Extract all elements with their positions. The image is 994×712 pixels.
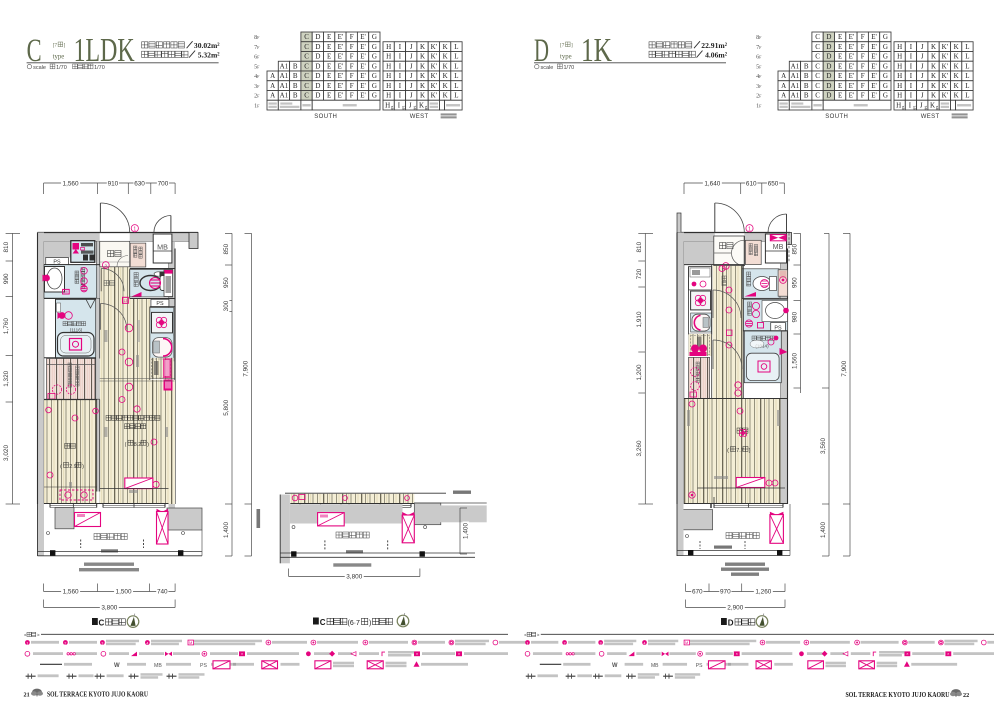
svg-text:1F: 1F [254,102,260,109]
svg-text:J: J [410,43,413,51]
svg-text:E': E' [360,53,366,61]
svg-text:E: E [327,92,331,100]
svg-text:K: K [443,62,448,70]
svg-text:F: F [350,43,354,51]
svg-text:H: H [897,53,902,61]
svg-text:A1: A1 [280,72,289,80]
svg-text:D: D [826,82,831,90]
svg-text:4F: 4F [254,73,260,80]
svg-text:7,900: 7,900 [841,360,848,376]
svg-text:K: K [954,72,959,80]
svg-text:1,640: 1,640 [704,180,720,187]
svg-text:3,260: 3,260 [636,440,643,456]
svg-text:3: 3 [600,641,602,645]
svg-text:3,800: 3,800 [101,605,117,612]
svg-text:J: J [921,92,924,100]
svg-text:L: L [965,72,969,80]
svg-text:C: C [815,53,820,61]
svg-text:D: D [826,53,831,61]
svg-text:type: type [53,54,65,61]
svg-text:K: K [954,43,959,51]
svg-text:E': E' [871,53,877,61]
svg-text:1,560: 1,560 [63,180,79,187]
svg-text:1/70: 1/70 [564,65,575,71]
svg-text:1/70: 1/70 [94,65,105,71]
svg-text:6F: 6F [254,54,260,61]
svg-text:7F: 7F [254,44,260,51]
svg-text:F: F [861,53,865,61]
svg-text:E': E' [871,43,877,51]
svg-text:F: F [861,82,865,90]
svg-text:H: H [897,62,902,70]
svg-text:1,560: 1,560 [63,589,79,596]
svg-text:E: E [838,33,842,41]
svg-text:F: F [350,72,354,80]
svg-text:K: K [931,72,936,80]
svg-text:810: 810 [636,241,643,252]
svg-text:K': K' [942,92,948,100]
svg-text:1: 1 [26,641,28,645]
svg-text:): ) [749,448,751,454]
svg-text:E': E' [849,62,855,70]
svg-text:4F: 4F [756,73,762,80]
svg-text:M: M [685,641,688,645]
svg-text:SOL TERRACE KYOTO JUJO KAORU: SOL TERRACE KYOTO JUJO KAORU [846,692,950,699]
svg-text:F: F [350,82,354,90]
svg-text:2: 2 [64,641,66,645]
svg-text:SOUTH: SOUTH [825,114,848,120]
svg-text:1,500: 1,500 [116,589,132,596]
svg-text:A: A [781,92,786,100]
svg-text:5.32m²: 5.32m² [198,51,221,60]
svg-text:K': K' [942,62,948,70]
svg-text:E': E' [849,33,855,41]
svg-text:E': E' [360,62,366,70]
svg-text:A: A [270,82,275,90]
svg-text:L: L [965,62,969,70]
svg-text:K: K [931,43,936,51]
svg-text:A: A [781,72,786,80]
svg-text:L: L [454,53,458,61]
svg-text:2F: 2F [254,93,260,100]
svg-text:<: < [24,633,27,638]
svg-text:F: F [350,62,354,70]
svg-text:G: G [372,72,377,80]
svg-text:E: E [327,82,331,90]
svg-text:H: H [897,72,902,80]
svg-text:C: C [815,33,820,41]
svg-text:A: A [781,82,786,90]
svg-text:H: H [386,82,391,90]
svg-text:C: C [304,82,309,90]
svg-text:G: G [883,43,888,51]
svg-text:E': E' [338,62,344,70]
svg-text:E: E [838,92,842,100]
svg-text:K: K [443,43,448,51]
svg-text:C: C [304,33,309,41]
svg-text:K: K [420,92,425,100]
svg-text:L: L [454,72,458,80]
svg-text:K: K [931,53,936,61]
svg-text:]: ] [571,43,573,49]
svg-text:E': E' [338,53,344,61]
svg-text:C: C [304,72,309,80]
svg-text:E: E [327,62,331,70]
svg-text:MB: MB [154,663,162,669]
svg-text:K': K' [431,53,437,61]
svg-text:H: H [386,72,391,80]
svg-text:(1116): (1116) [70,328,83,333]
svg-text:K: K [954,62,959,70]
svg-text:B: B [293,82,298,90]
svg-text:H: H [386,43,391,51]
svg-text:K: K [443,53,448,61]
svg-text:L: L [965,92,969,100]
svg-text:K: K [931,92,936,100]
svg-text:D: D [315,82,320,90]
svg-text:A1: A1 [791,92,800,100]
svg-text:1LDK: 1LDK [74,32,135,69]
svg-text:W: W [114,663,120,669]
svg-text:B: B [804,72,809,80]
svg-text:>: > [37,633,40,638]
svg-text:H: H [897,92,902,100]
svg-text:K: K [420,62,425,70]
svg-text:F: F [861,72,865,80]
svg-text:G: G [883,92,888,100]
svg-text:C: C [815,62,820,70]
svg-text:J: J [921,53,924,61]
svg-text:A1: A1 [791,82,800,90]
svg-text:2.9: 2.9 [69,464,77,470]
svg-text:H: H [386,53,391,61]
svg-text:E': E' [360,92,366,100]
svg-text:K: K [443,92,448,100]
svg-text:E': E' [360,33,366,41]
svg-text:E': E' [849,43,855,51]
svg-text:K: K [931,62,936,70]
svg-text:8F: 8F [756,34,762,41]
svg-text:1,910: 1,910 [636,311,643,327]
svg-text:WEST: WEST [410,114,429,120]
svg-text:B: B [804,62,809,70]
svg-text:D: D [826,92,831,100]
svg-text:F: F [861,43,865,51]
svg-text:K: K [954,53,959,61]
svg-text:K: K [443,72,448,80]
svg-text:H: H [896,101,901,109]
svg-text:E': E' [871,92,877,100]
svg-text:5,800: 5,800 [223,399,230,415]
svg-text:K': K' [431,92,437,100]
svg-text:L: L [454,92,458,100]
svg-text:E': E' [338,43,344,51]
svg-text:C: C [304,53,309,61]
svg-text:B: B [293,72,298,80]
svg-text:910: 910 [108,180,119,187]
svg-text:K': K' [942,72,948,80]
svg-text:2: 2 [564,641,566,645]
svg-text:E': E' [360,72,366,80]
svg-text:<: < [524,632,527,637]
svg-text:7,900: 7,900 [243,360,250,376]
svg-text:E: E [327,43,331,51]
svg-text:F: F [861,62,865,70]
svg-text:850: 850 [792,243,799,254]
svg-text:J: J [410,92,413,100]
svg-text:13: 13 [124,299,128,303]
svg-text:A1: A1 [280,82,289,90]
svg-text:C: C [815,72,820,80]
svg-text:E': E' [849,82,855,90]
svg-text:E': E' [338,82,344,90]
svg-text:K: K [954,92,959,100]
svg-text:type: type [560,54,572,61]
svg-text:E: E [838,62,842,70]
svg-text:G: G [372,82,377,90]
svg-text:J: J [921,62,924,70]
svg-text:980: 980 [792,311,799,322]
svg-text:H: H [386,62,391,70]
svg-text:E: E [327,53,331,61]
svg-text:A1: A1 [280,62,289,70]
svg-text:990: 990 [3,273,10,284]
svg-text:2: 2 [105,263,108,268]
svg-text:K': K' [942,43,948,51]
svg-text:E': E' [849,72,855,80]
svg-text:L: L [965,43,969,51]
svg-text:3,560: 3,560 [820,438,827,454]
svg-text:700: 700 [158,180,169,187]
svg-text:K: K [420,82,425,90]
svg-text:300: 300 [223,300,230,311]
svg-text:[7: [7 [53,43,58,49]
svg-text:J: J [921,72,924,80]
svg-text:K: K [954,82,959,90]
svg-text:W: W [612,663,618,669]
svg-text:950: 950 [223,277,230,288]
svg-text:F: F [350,33,354,41]
svg-text:2,900: 2,900 [727,605,743,612]
svg-text:1,260: 1,260 [755,589,771,596]
svg-text:E': E' [360,82,366,90]
svg-text:1: 1 [527,641,529,645]
svg-text:K: K [420,72,425,80]
svg-text:L: L [454,82,458,90]
svg-text:670: 670 [692,589,703,596]
svg-text:L: L [454,43,458,51]
svg-text:(: ( [727,448,729,454]
svg-text:2F: 2F [756,93,762,100]
svg-text:3: 3 [101,641,103,645]
svg-text:D: D [534,33,549,69]
svg-text:WEST: WEST [921,114,940,120]
svg-text:SOL TERRACE KYOTO JUJO KAORU: SOL TERRACE KYOTO JUJO KAORU [47,692,148,699]
svg-text:E': E' [338,33,344,41]
svg-text:K: K [419,101,424,109]
svg-text:1,400: 1,400 [820,522,827,538]
svg-text:PS: PS [696,663,703,669]
svg-text:5F: 5F [756,63,762,70]
svg-text:E': E' [871,62,877,70]
svg-text:D: D [826,62,831,70]
svg-text:C: C [815,82,820,90]
svg-text:E: E [327,72,331,80]
svg-text:(: ( [60,464,62,470]
svg-text:B: B [804,92,809,100]
svg-text:M: M [189,641,192,645]
svg-text:5F: 5F [254,63,260,70]
svg-text:D: D [315,53,320,61]
svg-text:K': K' [431,82,437,90]
svg-text:>: > [537,632,540,637]
svg-text:G: G [883,53,888,61]
svg-text:C: C [27,33,42,69]
svg-text:H: H [897,43,902,51]
svg-text:E': E' [871,33,877,41]
svg-text:A1: A1 [791,62,800,70]
svg-text:D: D [315,72,320,80]
svg-text:21: 21 [24,692,30,699]
svg-text:K': K' [942,53,948,61]
svg-text:K': K' [431,43,437,51]
svg-text:J: J [410,62,413,70]
svg-text:A: A [270,92,275,100]
svg-text:L: L [965,53,969,61]
svg-text:1K: 1K [581,32,612,69]
svg-text:G: G [372,33,377,41]
svg-text:630: 630 [134,180,145,187]
svg-text:950: 950 [792,277,799,288]
svg-text:G: G [372,62,377,70]
svg-text:720: 720 [636,268,643,279]
svg-text:K: K [930,101,935,109]
svg-text:D: D [826,72,831,80]
svg-text:A1: A1 [280,92,289,100]
svg-text:G: G [883,33,888,41]
svg-text:1,400: 1,400 [223,522,230,538]
svg-text:D: D [315,43,320,51]
svg-text:E': E' [338,72,344,80]
svg-text:D: D [315,62,320,70]
svg-text:E': E' [871,72,877,80]
svg-text:K': K' [431,72,437,80]
svg-text:C: C [99,618,105,627]
svg-text:K: K [420,53,425,61]
svg-text:7F: 7F [756,44,762,51]
svg-text:B: B [293,62,298,70]
svg-text:H: H [386,92,391,100]
svg-text:G: G [372,53,377,61]
svg-text:G: G [372,43,377,51]
svg-text:F: F [861,92,865,100]
svg-text:MB: MB [157,243,168,252]
svg-text:1: 1 [748,227,751,233]
svg-text:A: A [270,72,275,80]
svg-text:4: 4 [644,641,646,645]
svg-text:3,020: 3,020 [3,445,10,461]
svg-text:J: J [921,43,924,51]
svg-text:1/70: 1/70 [56,65,67,71]
svg-text:J: J [921,82,924,90]
svg-text:E: E [838,82,842,90]
svg-text:810: 810 [3,241,10,252]
svg-text:970: 970 [720,589,731,596]
svg-text:E': E' [360,43,366,51]
svg-text:J: J [410,72,413,80]
svg-text:3F: 3F [254,83,260,90]
svg-text:]: ] [64,43,66,49]
svg-text:F: F [350,92,354,100]
svg-text:G: G [372,92,377,100]
svg-text:C: C [320,618,326,627]
svg-text:J: J [920,101,923,109]
svg-text:E: E [838,43,842,51]
svg-text:K: K [443,82,448,90]
svg-text:E': E' [849,53,855,61]
svg-text:22.91m²: 22.91m² [701,41,727,50]
svg-text:J: J [409,101,412,109]
svg-text:K': K' [431,62,437,70]
svg-text:1,320: 1,320 [3,370,10,386]
svg-text:C: C [304,92,309,100]
svg-text:C: C [304,43,309,51]
svg-text:PS: PS [200,663,207,669]
svg-text:): ) [147,442,149,448]
svg-text:F: F [350,53,354,61]
svg-text:K': K' [942,82,948,90]
svg-text:J: J [410,53,413,61]
svg-text:G: G [883,72,888,80]
svg-text:SOUTH: SOUTH [314,114,337,120]
svg-text:scale: scale [541,65,554,71]
svg-text:K: K [420,43,425,51]
svg-text:E: E [327,33,331,41]
svg-text:): ) [369,620,371,627]
svg-text:E': E' [871,82,877,90]
svg-text:H: H [385,101,390,109]
svg-text:H: H [897,82,902,90]
svg-text:(: ( [125,442,127,448]
svg-text:C: C [815,43,820,51]
svg-text:MB: MB [773,242,784,251]
svg-text:B: B [804,82,809,90]
svg-text:B: B [293,92,298,100]
svg-text:F: F [861,33,865,41]
svg-text:G: G [883,62,888,70]
svg-text:1,200: 1,200 [636,364,643,380]
svg-text:D: D [826,33,831,41]
svg-text:7.7: 7.7 [736,448,744,454]
svg-text:C: C [304,62,309,70]
svg-text:[7: [7 [560,43,565,49]
svg-text:22: 22 [963,692,969,699]
svg-text:1F: 1F [756,102,762,109]
svg-text:8F: 8F [254,34,260,41]
svg-text:D: D [728,618,734,627]
svg-text:1: 1 [133,227,136,233]
svg-text:G: G [883,82,888,90]
svg-text:30.02m²: 30.02m² [194,41,220,50]
svg-text:740: 740 [157,589,168,596]
svg-text:(6·7: (6·7 [348,620,361,627]
svg-text:D: D [315,92,320,100]
svg-text:850: 850 [223,243,230,254]
svg-text:8.2: 8.2 [134,442,142,448]
svg-text:6F: 6F [756,54,762,61]
svg-text:E: E [838,53,842,61]
svg-text:1,760: 1,760 [3,318,10,334]
